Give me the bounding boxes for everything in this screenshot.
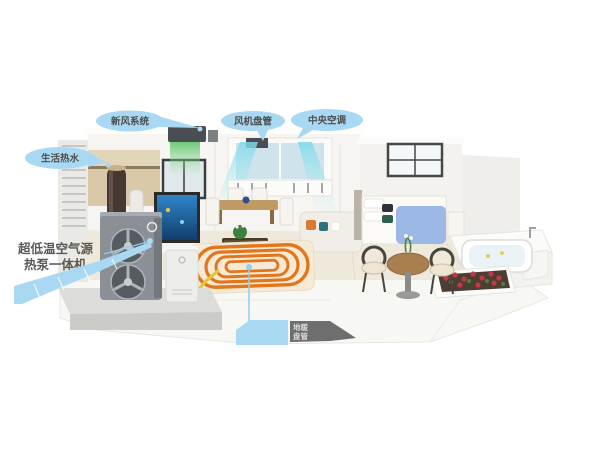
label-heat-pump-line1: 超低温空气源 (17, 241, 94, 256)
label-hot-water-text: 生活热水 (41, 153, 80, 165)
scene: 新风系统 生活热水 风机盘管 中央空调 超低温空气源 热泵一体机 (0, 0, 600, 450)
label-fan-coil-text: 风机盘管 (234, 116, 273, 128)
label-floor-heating-line1: 地暖 (293, 322, 308, 332)
label-central-ac-text: 中央空调 (308, 115, 346, 127)
label-fresh-air-text: 新风系统 (111, 116, 150, 128)
nightstand (448, 212, 464, 236)
fresh-air-glow (170, 142, 200, 174)
house-illustration: 新风系统 生活热水 风机盘管 中央空调 超低温空气源 热泵一体机 (0, 0, 600, 450)
floor-heating-coil (189, 240, 315, 294)
balustrade (228, 180, 332, 196)
fan-bottom-icon (111, 265, 145, 299)
label-floor-heating-line2: 盘管 (293, 331, 308, 341)
hydronic-module (166, 246, 198, 302)
bed (354, 190, 446, 244)
